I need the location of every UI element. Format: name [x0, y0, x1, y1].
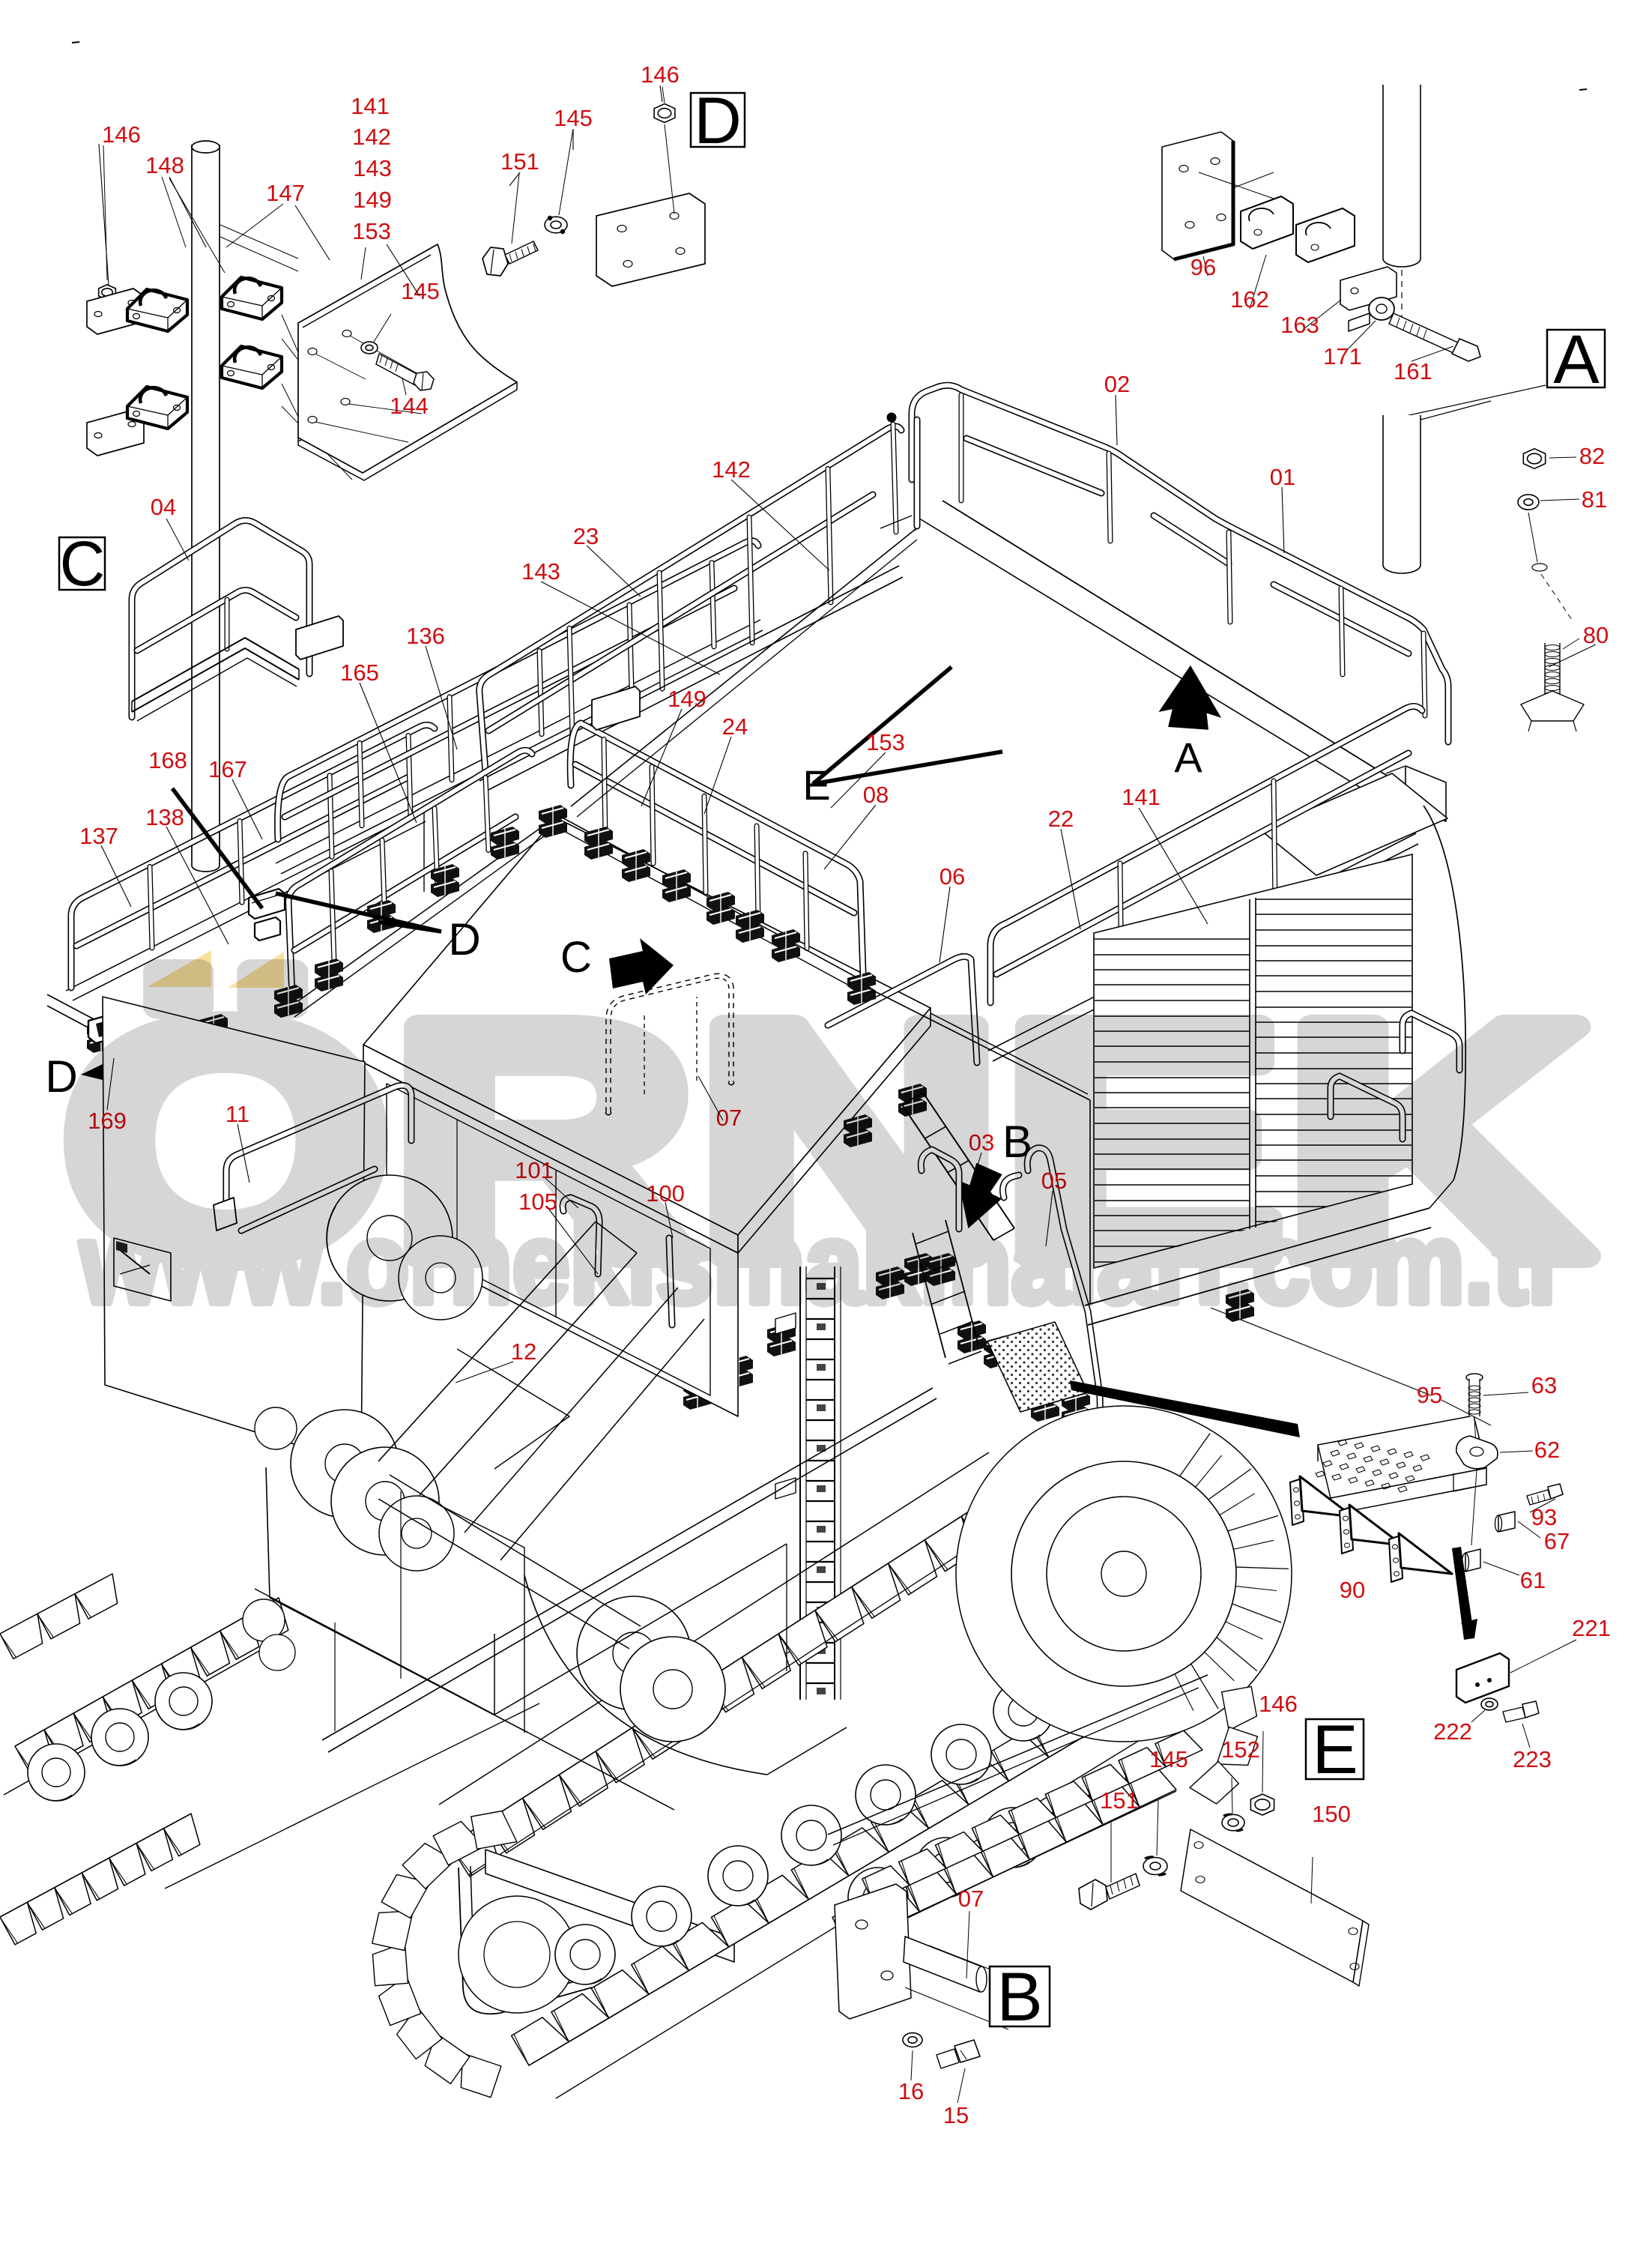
svg-text:E: E — [802, 761, 830, 809]
svg-text:22: 22 — [1048, 806, 1074, 832]
svg-text:61: 61 — [1520, 1567, 1546, 1593]
svg-text:67: 67 — [1544, 1528, 1570, 1554]
svg-text:163: 163 — [1280, 312, 1319, 338]
svg-text:136: 136 — [406, 623, 445, 649]
svg-text:150: 150 — [1312, 1801, 1351, 1827]
svg-text:A: A — [1174, 734, 1202, 781]
svg-text:165: 165 — [340, 659, 379, 686]
svg-text:95: 95 — [1417, 1382, 1442, 1408]
svg-text:151: 151 — [500, 148, 539, 175]
svg-text:162: 162 — [1230, 286, 1269, 313]
svg-text:23: 23 — [573, 523, 599, 549]
svg-text:149: 149 — [353, 187, 392, 213]
svg-text:142: 142 — [352, 124, 391, 150]
svg-text:161: 161 — [1394, 358, 1432, 384]
svg-text:B: B — [996, 1959, 1042, 2035]
svg-text:145: 145 — [401, 278, 440, 304]
svg-text:82: 82 — [1579, 443, 1605, 469]
svg-text:www.ornekismakinalari.com.tr: www.ornekismakinalari.com.tr — [80, 1200, 1568, 1327]
svg-text:143: 143 — [521, 558, 560, 585]
svg-text:12: 12 — [511, 1338, 536, 1365]
svg-text:01: 01 — [1270, 464, 1295, 490]
svg-text:152: 152 — [1221, 1736, 1260, 1763]
svg-text:80: 80 — [1583, 622, 1609, 648]
svg-text:07: 07 — [958, 1886, 984, 1912]
svg-text:148: 148 — [145, 152, 184, 178]
svg-text:167: 167 — [208, 756, 247, 782]
svg-text:222: 222 — [1433, 1718, 1472, 1745]
svg-text:146: 146 — [641, 61, 680, 88]
svg-text:04: 04 — [151, 494, 176, 520]
svg-text:E: E — [1312, 1712, 1358, 1788]
svg-text:D: D — [694, 83, 742, 157]
svg-text:146: 146 — [1259, 1691, 1298, 1717]
svg-text:81: 81 — [1582, 486, 1607, 513]
svg-text:90: 90 — [1340, 1577, 1365, 1603]
svg-text:141: 141 — [1122, 784, 1161, 810]
svg-text:142: 142 — [712, 456, 751, 483]
svg-text:151: 151 — [1100, 1787, 1139, 1814]
svg-text:138: 138 — [145, 804, 184, 830]
svg-text:146: 146 — [102, 121, 141, 148]
svg-text:A: A — [1553, 322, 1600, 398]
svg-text:15: 15 — [943, 2102, 969, 2128]
svg-text:06: 06 — [940, 863, 965, 890]
svg-text:C: C — [60, 528, 106, 599]
svg-text:08: 08 — [863, 782, 889, 808]
svg-text:96: 96 — [1190, 254, 1216, 280]
svg-text:147: 147 — [266, 180, 305, 206]
svg-text:149: 149 — [668, 686, 707, 712]
svg-text:02: 02 — [1104, 371, 1130, 397]
svg-text:171: 171 — [1323, 343, 1362, 369]
svg-text:145: 145 — [1149, 1746, 1188, 1772]
svg-text:93: 93 — [1531, 1504, 1557, 1530]
svg-text:153: 153 — [866, 729, 905, 755]
svg-text:141: 141 — [351, 93, 390, 119]
svg-text:221: 221 — [1572, 1615, 1611, 1641]
svg-text:62: 62 — [1534, 1437, 1560, 1463]
svg-text:16: 16 — [898, 2078, 924, 2104]
svg-text:143: 143 — [353, 155, 392, 181]
svg-text:153: 153 — [352, 218, 391, 244]
svg-text:137: 137 — [79, 823, 118, 849]
svg-text:223: 223 — [1513, 1746, 1552, 1772]
svg-text:145: 145 — [554, 105, 593, 131]
svg-text:63: 63 — [1531, 1372, 1557, 1398]
svg-text:168: 168 — [148, 747, 187, 773]
svg-text:144: 144 — [390, 393, 429, 419]
svg-text:24: 24 — [722, 713, 748, 740]
